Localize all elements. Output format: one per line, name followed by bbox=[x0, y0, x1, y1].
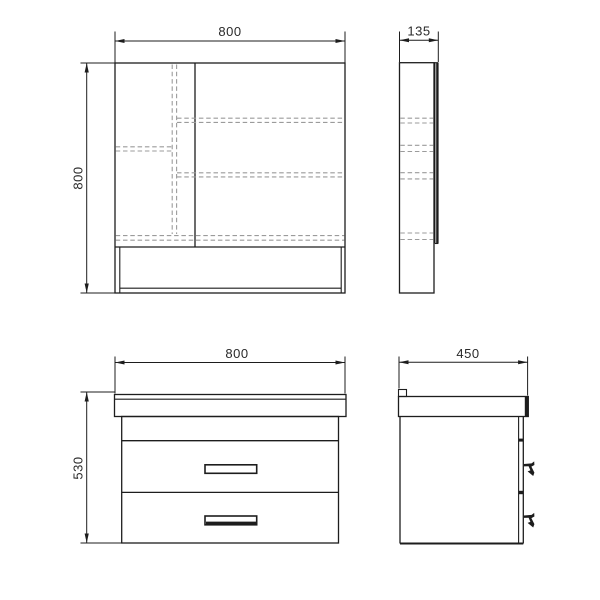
arrowhead-left bbox=[115, 361, 125, 365]
mirror-front-outline bbox=[115, 63, 345, 293]
arrowhead-left bbox=[400, 38, 410, 42]
countertop-front-edge bbox=[525, 397, 528, 416]
arrowhead-up bbox=[85, 63, 89, 73]
vanity-width-label: 800 bbox=[225, 346, 248, 361]
arrowhead-right bbox=[336, 361, 346, 365]
drawer-handle-top bbox=[205, 465, 257, 474]
mirror-depth-label: 135 bbox=[407, 24, 430, 39]
drawer-gap-top bbox=[519, 439, 524, 442]
drawing-canvas: 800 800 bbox=[0, 0, 600, 600]
dimension-mirror-width: 800 bbox=[115, 24, 345, 63]
mirror-side-hidden-lines bbox=[400, 118, 433, 239]
mirror-side-body bbox=[400, 63, 435, 293]
vanity-cabinet-side-view: 450 bbox=[399, 346, 535, 544]
vanity-cabinet-front-view: 800 530 bbox=[71, 346, 347, 543]
arrowhead-right bbox=[518, 360, 528, 364]
arrowhead-up bbox=[85, 392, 89, 402]
dimension-mirror-depth: 135 bbox=[400, 24, 439, 63]
dimension-vanity-depth: 450 bbox=[399, 346, 528, 396]
counter-back-lip bbox=[399, 390, 407, 397]
mirror-width-label: 800 bbox=[218, 24, 241, 39]
arrowhead-right bbox=[429, 38, 439, 42]
technical-drawing: 800 800 bbox=[0, 0, 600, 600]
countertop bbox=[115, 395, 347, 417]
dimension-mirror-height: 800 bbox=[71, 63, 116, 293]
vanity-height-label: 530 bbox=[71, 456, 86, 479]
mirror-cabinet-front-view: 800 800 bbox=[71, 24, 346, 293]
mirror-cabinet-side-view: 135 bbox=[400, 24, 439, 294]
mirror-front-hidden-lines bbox=[116, 65, 345, 241]
arrowhead-left bbox=[399, 360, 409, 364]
countertop-side bbox=[399, 397, 529, 417]
arrowhead-left bbox=[115, 39, 125, 43]
handle-profile-bottom bbox=[524, 513, 535, 528]
mirror-height-label: 800 bbox=[71, 166, 86, 189]
arrowhead-down bbox=[85, 534, 89, 544]
vanity-depth-label: 450 bbox=[456, 346, 479, 361]
arrowhead-down bbox=[85, 284, 89, 294]
dimension-vanity-width: 800 bbox=[115, 346, 345, 394]
arrowhead-right bbox=[336, 39, 346, 43]
handle-profile-top bbox=[524, 461, 535, 476]
drawer-gap-middle bbox=[519, 491, 524, 494]
